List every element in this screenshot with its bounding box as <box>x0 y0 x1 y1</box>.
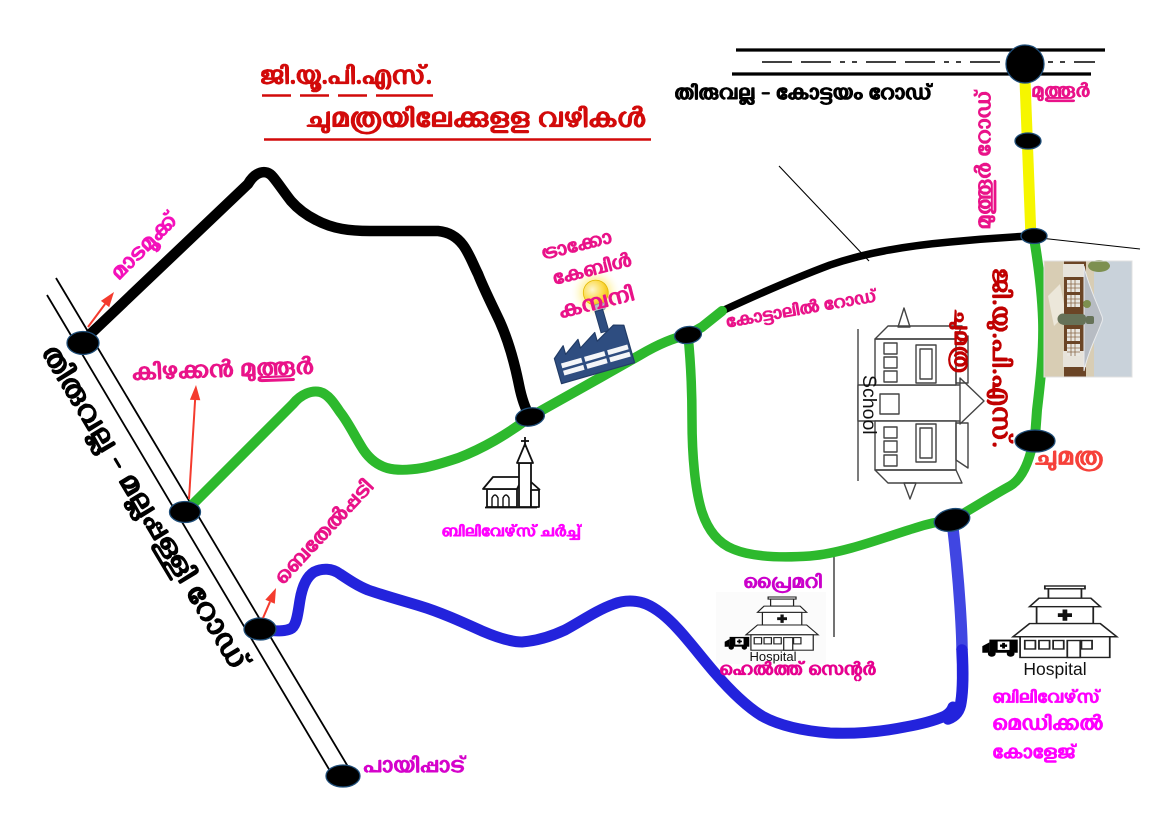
svg-text:Hospital: Hospital <box>750 649 797 664</box>
svg-text:Hospital: Hospital <box>1023 659 1086 679</box>
svg-text:School: School <box>858 375 880 435</box>
